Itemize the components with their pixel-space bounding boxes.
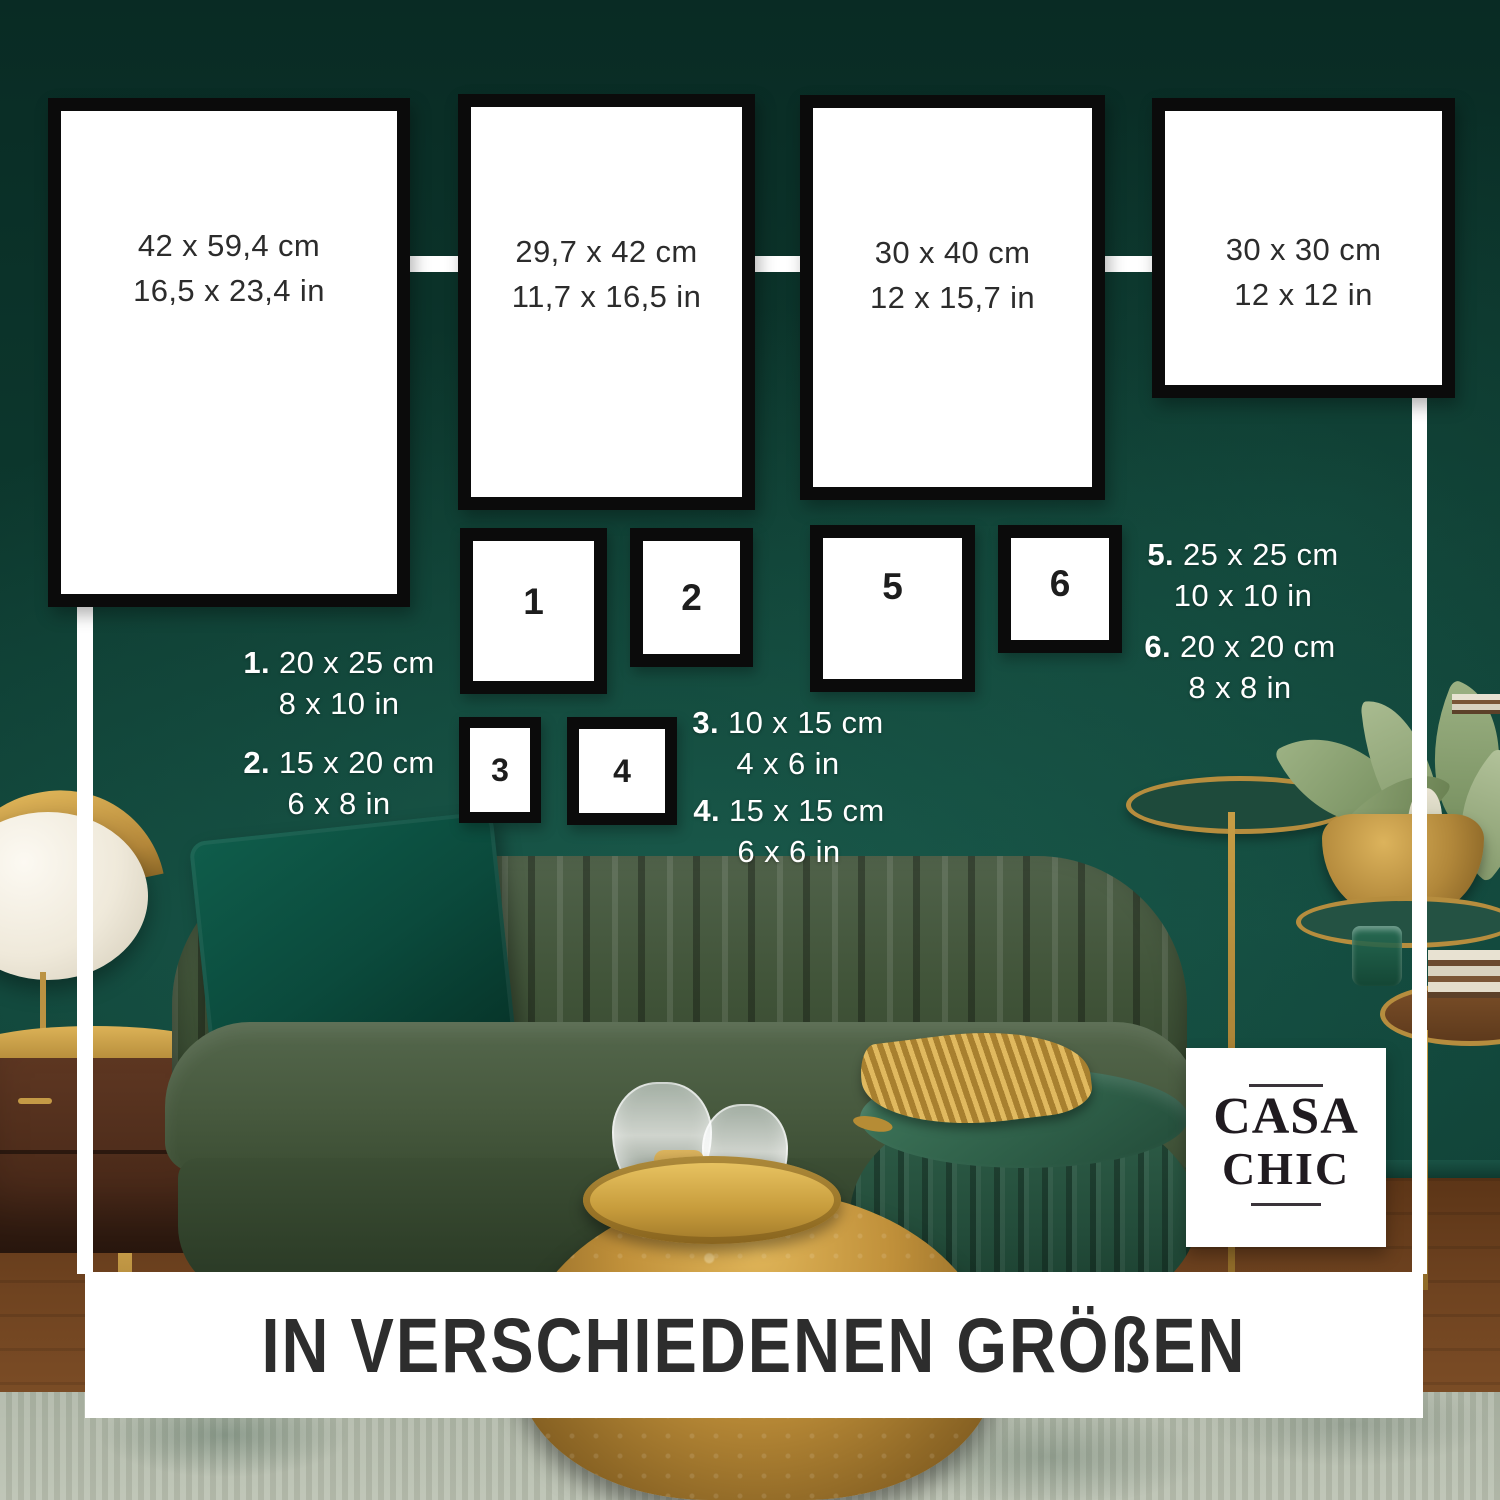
green-glass [1352, 926, 1402, 986]
frame-number-2: 2 [630, 528, 753, 667]
frame-42x59: 42 x 59,4 cm 16,5 x 23,4 in [48, 98, 410, 607]
frame-size-label: 30 x 30 cm 12 x 12 in [1165, 227, 1442, 317]
legend-in: 10 x 10 in [1138, 575, 1348, 616]
brand-logo-card: CASA CHIC [1186, 1048, 1386, 1247]
cabinet-knob [18, 1098, 52, 1104]
book-stack-small [1452, 694, 1500, 714]
legend-in: 8 x 10 in [233, 683, 445, 724]
legend-entry-3: 3. 10 x 15 cm 4 x 6 in [688, 702, 888, 784]
legend-cm: 4. 15 x 15 cm [688, 790, 890, 831]
legend-in: 6 x 8 in [233, 783, 445, 824]
size-cm: 29,7 x 42 cm [471, 229, 742, 274]
size-in: 11,7 x 16,5 in [471, 274, 742, 319]
book-stack [1428, 950, 1500, 998]
frame-number-5: 5 [810, 525, 975, 692]
logo-rule-bottom [1251, 1203, 1321, 1206]
legend-entry-5: 5. 25 x 25 cm 10 x 10 in [1138, 534, 1348, 616]
legend-cm: 6. 20 x 20 cm [1138, 626, 1342, 667]
frame-number-label: 6 [1050, 563, 1071, 605]
brand-name-casa: CASA [1213, 1091, 1359, 1143]
brand-name-chic: CHIC [1222, 1145, 1350, 1193]
legend-in: 8 x 8 in [1138, 667, 1342, 708]
size-in: 12 x 15,7 in [813, 275, 1092, 320]
legend-entry-6: 6. 20 x 20 cm 8 x 8 in [1138, 626, 1342, 708]
frame-size-label: 42 x 59,4 cm 16,5 x 23,4 in [61, 223, 397, 313]
legend-in: 4 x 6 in [688, 743, 888, 784]
frame-number-1: 1 [460, 528, 607, 694]
size-cm: 30 x 30 cm [1165, 227, 1442, 272]
frame-number-label: 4 [613, 753, 631, 790]
legend-entry-1: 1. 20 x 25 cm 8 x 10 in [233, 642, 445, 724]
frame-number-4: 4 [567, 717, 677, 825]
size-cm: 30 x 40 cm [813, 230, 1092, 275]
size-in: 12 x 12 in [1165, 272, 1442, 317]
lamp-stem [40, 972, 46, 1034]
size-in: 16,5 x 23,4 in [61, 268, 397, 313]
size-guide-infographic: 42 x 59,4 cm 16,5 x 23,4 in 29,7 x 42 cm… [0, 0, 1500, 1500]
bottom-banner: IN VERSCHIEDENEN GRÖßEN [85, 1272, 1423, 1418]
frame-size-label: 30 x 40 cm 12 x 15,7 in [813, 230, 1092, 320]
frame-30x30: 30 x 30 cm 12 x 12 in [1152, 98, 1455, 398]
logo-rule-top [1249, 1084, 1323, 1087]
legend-cm: 2. 15 x 20 cm [233, 742, 445, 783]
legend-entry-2: 2. 15 x 20 cm 6 x 8 in [233, 742, 445, 824]
white-line-right [1412, 256, 1427, 1274]
frame-number-3: 3 [459, 717, 541, 823]
frame-30x40: 30 x 40 cm 12 x 15,7 in [800, 95, 1105, 500]
legend-cm: 1. 20 x 25 cm [233, 642, 445, 683]
legend-entry-4: 4. 15 x 15 cm 6 x 6 in [688, 790, 890, 872]
banner-title: IN VERSCHIEDENEN GRÖßEN [261, 1301, 1246, 1390]
frame-number-label: 2 [681, 577, 702, 619]
legend-in: 6 x 6 in [688, 831, 890, 872]
frame-number-label: 1 [523, 581, 544, 623]
gold-tray [583, 1156, 841, 1244]
frame-number-6: 6 [998, 525, 1122, 653]
frame-29x42: 29,7 x 42 cm 11,7 x 16,5 in [458, 94, 755, 510]
legend-cm: 5. 25 x 25 cm [1138, 534, 1348, 575]
frame-number-label: 5 [882, 566, 903, 608]
size-cm: 42 x 59,4 cm [61, 223, 397, 268]
legend-cm: 3. 10 x 15 cm [688, 702, 888, 743]
frame-size-label: 29,7 x 42 cm 11,7 x 16,5 in [471, 229, 742, 319]
frame-number-label: 3 [491, 752, 509, 789]
